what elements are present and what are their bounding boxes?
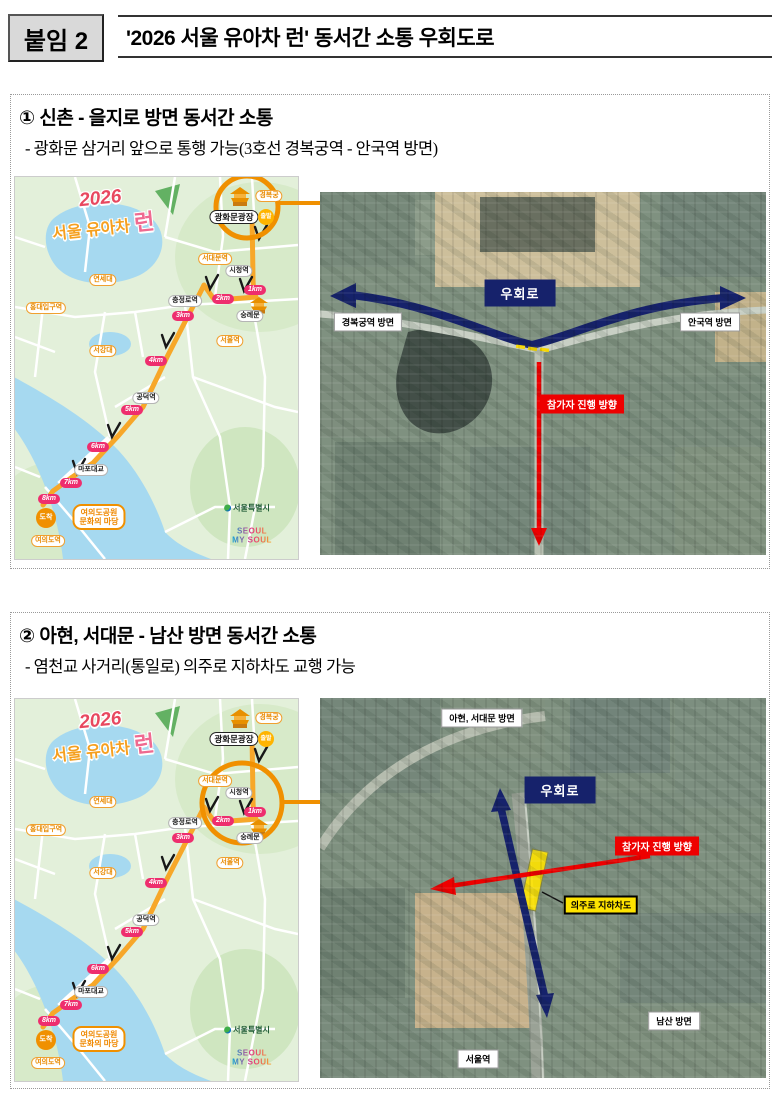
attachment-tag: 붙임 2 bbox=[8, 14, 104, 62]
palace-building bbox=[480, 197, 595, 252]
label-start-gwanghwamun-plaza: 광화문광장 bbox=[209, 732, 258, 746]
event-logo-run: 런 bbox=[133, 209, 156, 236]
title-rule-bottom bbox=[118, 56, 772, 58]
course-map-1-slot: 2026 서울 유아차 런 경복궁 광화문광장 출발 시청역 1km 서대문역 … bbox=[14, 176, 297, 558]
label-hongdae-station: 홍대입구역 bbox=[26, 824, 66, 836]
label-cityhall-station: 시청역 bbox=[225, 787, 252, 799]
callout-connector-2 bbox=[280, 800, 322, 804]
start-badge: 출발 bbox=[258, 209, 274, 225]
section-1-heading: ① 신촌 - 을지로 방면 동서간 소통 bbox=[19, 103, 273, 130]
km-marker-4: 4km bbox=[145, 356, 167, 366]
label-yonsei: 연세대 bbox=[89, 796, 116, 808]
section-2-heading: ② 아현, 서대문 - 남산 방면 동서간 소통 bbox=[19, 621, 316, 648]
finish-label: 여의도공원 문화의 마당 bbox=[72, 1026, 125, 1052]
label-sogang: 서강대 bbox=[89, 345, 116, 357]
finish-label: 여의도공원 문화의 마당 bbox=[72, 504, 125, 530]
seoul-city-logo: 서울특별시 bbox=[224, 503, 270, 514]
seoul-city-logo: 서울특별시 bbox=[224, 1025, 270, 1036]
seoul-city-logo-icon bbox=[224, 505, 231, 512]
label-sungnyemun: 숭례문 bbox=[236, 310, 263, 322]
km-marker-6: 6km bbox=[87, 964, 109, 974]
detour-label-1: 우회로 bbox=[485, 280, 556, 307]
gyeongbokgung-direction-label: 경복궁역 방면 bbox=[334, 313, 402, 332]
label-yeouido-station: 여의도역 bbox=[31, 535, 65, 547]
label-gongdeok-station: 공덕역 bbox=[132, 392, 159, 404]
underpass-pointer-line bbox=[542, 892, 563, 903]
pond bbox=[396, 329, 492, 434]
label-chungjeongno-station: 충정로역 bbox=[168, 295, 202, 307]
label-mapo-bridge: 마포대교 bbox=[74, 464, 108, 476]
label-seoul-station: 서울역 bbox=[216, 335, 243, 347]
document-page: 붙임 2 '2026 서울 유아차 런' 동서간 소통 우회도로 ① 신촌 - … bbox=[0, 0, 779, 1093]
satellite-map-1-graphics bbox=[320, 192, 766, 555]
ahyeon-direction-label: 아현, 서대문 방면 bbox=[441, 709, 522, 728]
seoul-my-soul-logo: SEOUL MY SOUL bbox=[232, 528, 272, 545]
label-yonsei: 연세대 bbox=[89, 274, 116, 286]
satellite-map-2: 아현, 서대문 방면 우회로 참가자 진행 방향 의주로 지하차도 남산 방면 … bbox=[320, 698, 766, 1078]
detour-arrowhead-left bbox=[330, 283, 356, 308]
finish-badge: 도착 bbox=[36, 1030, 56, 1050]
label-seodaemun-station: 서대문역 bbox=[198, 253, 232, 265]
km-marker-8: 8km bbox=[38, 1016, 60, 1026]
km-marker-3: 3km bbox=[172, 311, 194, 321]
km-marker-4: 4km bbox=[145, 878, 167, 888]
seoul-station-label: 서울역 bbox=[458, 1050, 499, 1069]
event-logo-run: 런 bbox=[133, 731, 156, 758]
km-marker-5: 5km bbox=[121, 927, 143, 937]
satellite-1-texture bbox=[320, 192, 766, 555]
label-seodaemun-station: 서대문역 bbox=[198, 775, 232, 787]
course-map-2-slot: 2026 서울 유아차 런 경복궁 광화문광장 출발 시청역 1km 서대문역 … bbox=[14, 698, 297, 1080]
title-rule-top bbox=[118, 15, 772, 17]
label-sungnyemun: 숭례문 bbox=[236, 832, 263, 844]
label-yeouido-station: 여의도역 bbox=[31, 1057, 65, 1069]
km-marker-3: 3km bbox=[172, 833, 194, 843]
participant-direction-label-1: 참가자 진행 방향 bbox=[540, 395, 624, 414]
label-hongdae-station: 홍대입구역 bbox=[26, 302, 66, 314]
satellite-map-1: 우회로 경복궁역 방면 안국역 방면 참가자 진행 방향 bbox=[320, 192, 766, 555]
callout-connector-1 bbox=[276, 201, 322, 205]
underpass-label: 의주로 지하차도 bbox=[564, 896, 638, 915]
namsan-direction-label: 남산 방면 bbox=[648, 1012, 700, 1031]
document-title: '2026 서울 유아차 런' 동서간 소통 우회도로 bbox=[126, 22, 772, 52]
km-marker-7: 7km bbox=[60, 1000, 82, 1010]
start-badge: 출발 bbox=[258, 731, 274, 747]
label-sogang: 서강대 bbox=[89, 867, 116, 879]
seoul-city-logo-icon bbox=[224, 1027, 231, 1034]
label-start-gwanghwamun-plaza: 광화문광장 bbox=[209, 210, 258, 224]
section-1-subheading: - 광화문 삼거리 앞으로 통행 가능(3호선 경복궁역 - 안국역 방면) bbox=[25, 135, 438, 159]
course-map: 2026 서울 유아차 런 경복궁 광화문광장 출발 시청역 1km 서대문역 … bbox=[14, 176, 299, 560]
km-marker-5: 5km bbox=[121, 405, 143, 415]
label-gyeongbokgung: 경복궁 bbox=[255, 712, 282, 724]
km-marker-2: 2km bbox=[212, 294, 234, 304]
km-marker-2: 2km bbox=[212, 816, 234, 826]
km-marker-1: 1km bbox=[244, 285, 266, 295]
detour-arrowhead-top bbox=[491, 788, 511, 812]
label-cityhall-station: 시청역 bbox=[225, 265, 252, 277]
detour-label-2: 우회로 bbox=[525, 777, 596, 804]
km-marker-1: 1km bbox=[244, 807, 266, 817]
anguk-direction-label: 안국역 방면 bbox=[680, 313, 740, 332]
label-mapo-bridge: 마포대교 bbox=[74, 986, 108, 998]
railyard-lot bbox=[415, 893, 530, 1028]
seoul-my-soul-logo: SEOUL MY SOUL bbox=[232, 1050, 272, 1067]
km-marker-7: 7km bbox=[60, 478, 82, 488]
participant-arrowhead-2 bbox=[430, 877, 456, 895]
km-marker-6: 6km bbox=[87, 442, 109, 452]
label-gongdeok-station: 공덕역 bbox=[132, 914, 159, 926]
km-marker-8: 8km bbox=[38, 494, 60, 504]
finish-badge: 도착 bbox=[36, 508, 56, 528]
participant-direction-label-2: 참가자 진행 방향 bbox=[615, 837, 699, 856]
course-map: 2026 서울 유아차 런 경복궁 광화문광장 출발 시청역 1km 서대문역 … bbox=[14, 698, 299, 1082]
label-chungjeongno-station: 충정로역 bbox=[168, 817, 202, 829]
section-2-subheading: - 염천교 사거리(통일로) 의주로 지하차도 교행 가능 bbox=[25, 653, 355, 677]
label-seoul-station: 서울역 bbox=[216, 857, 243, 869]
